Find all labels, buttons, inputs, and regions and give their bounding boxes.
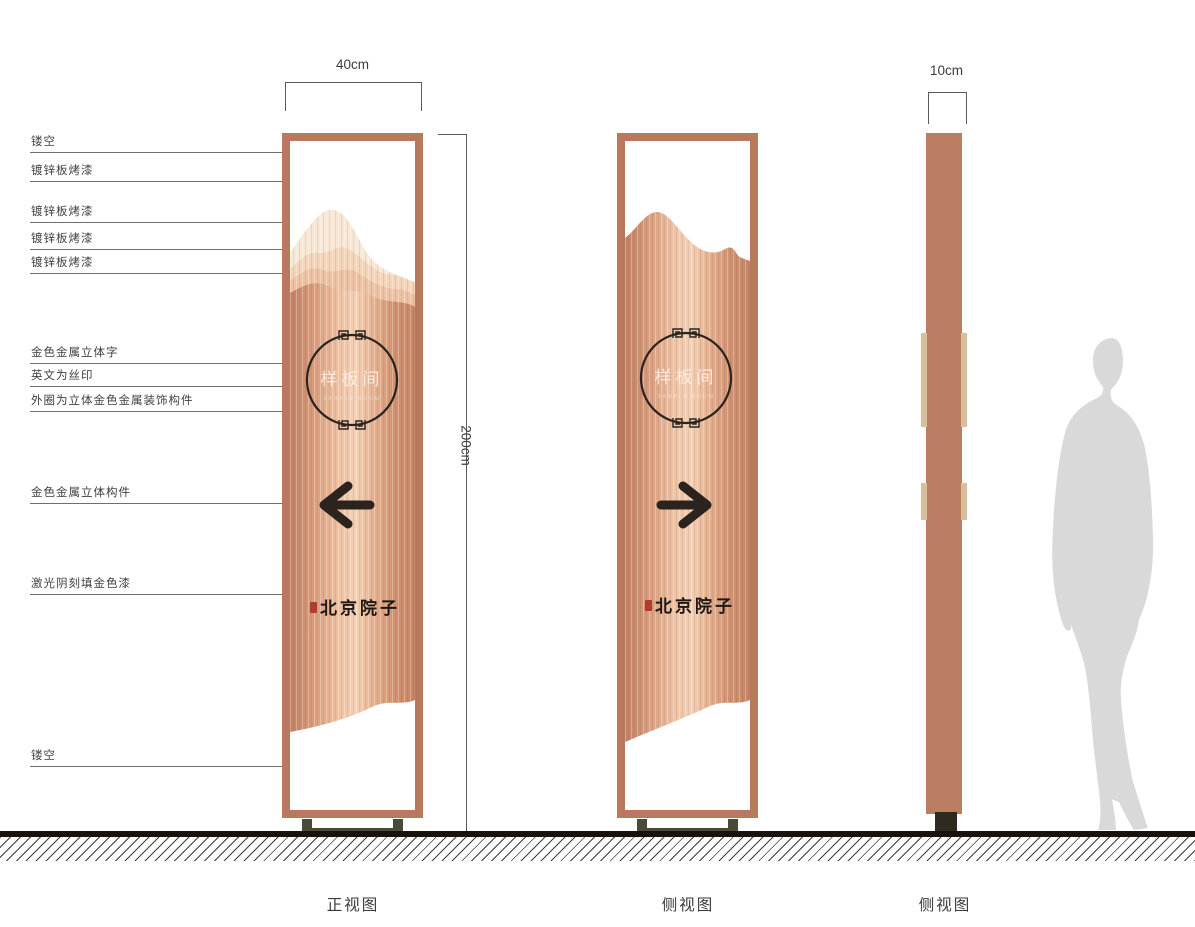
callout-galvanized-layer2: 镀锌板烤漆	[30, 229, 292, 250]
pillar-front-frame: 样板间 SAMPLE ROOM 北京院子	[282, 133, 423, 818]
annotation-label: 英文为丝印	[31, 367, 94, 383]
seal-stamp	[645, 600, 652, 611]
profile-tab-circle	[961, 333, 967, 427]
dimension-bracket-front	[285, 82, 422, 111]
callout-gold-arrow: 金色金属立体构件	[30, 483, 320, 504]
brand-calligraphy: 北京院子	[320, 598, 400, 618]
person-silhouette	[1040, 336, 1188, 833]
sign-plate-text: 样板间	[321, 370, 384, 389]
pillar-side-frame: 样板间 SAMPLE ROOM 北京院子	[617, 133, 758, 818]
annotation-label: 镂空	[31, 747, 56, 763]
callout-galvanized-frame: 镀锌板烤漆	[30, 161, 283, 182]
view-label-side: 侧视图	[662, 893, 715, 915]
callout-hollow-top: 镂空	[30, 132, 307, 153]
callout-galvanized-layer3: 镀锌板烤漆	[30, 253, 292, 274]
sign-plate-subtext: SAMPLE ROOM	[323, 396, 380, 402]
annotation-label: 镂空	[31, 133, 56, 149]
view-label-front: 正视图	[327, 893, 380, 915]
annotation-label: 激光阴刻填金色漆	[31, 575, 131, 591]
profile-tab-arrow	[961, 483, 967, 520]
callout-hollow-bottom: 镂空	[30, 746, 303, 767]
annotation-label: 金色金属立体字	[31, 344, 119, 360]
view-label-profile: 侧视图	[919, 893, 972, 915]
annotation-label: 外圈为立体金色金属装饰构件	[31, 392, 194, 408]
callout-ring-component: 外圈为立体金色金属装饰构件	[30, 391, 316, 412]
pillar-front-artwork: 样板间 SAMPLE ROOM 北京院子	[290, 141, 415, 810]
annotation-label: 镀锌板烤漆	[31, 162, 94, 178]
brand-mark: 北京院子	[310, 598, 400, 618]
seal-stamp	[310, 602, 317, 613]
dimension-height-line	[466, 134, 467, 832]
profile-tab-circle	[921, 333, 927, 427]
annotation-label: 镀锌板烤漆	[31, 230, 94, 246]
dimension-height-tick	[438, 134, 466, 135]
annotation-label: 镀锌板烤漆	[31, 203, 94, 219]
dimension-height: 200cm	[459, 416, 474, 476]
brand-calligraphy: 北京院子	[655, 596, 735, 616]
annotation-label: 金色金属立体构件	[31, 484, 131, 500]
brushed-texture	[625, 201, 750, 761]
pillar-profile-body	[926, 133, 962, 814]
ground-hatch	[0, 837, 1195, 861]
dimension-front-width: 40cm	[285, 57, 420, 72]
annotation-label: 镀锌板烤漆	[31, 254, 94, 270]
dimension-side-depth: 10cm	[928, 63, 965, 78]
pillar-side-artwork: 样板间 SAMPLE ROOM 北京院子	[625, 141, 750, 810]
profile-tab-arrow	[921, 483, 927, 520]
sign-plate-subtext: SAMPLE ROOM	[657, 394, 714, 400]
callout-galvanized-layer1: 镀锌板烤漆	[30, 202, 322, 223]
brand-mark: 北京院子	[645, 596, 735, 616]
brushed-texture	[290, 201, 415, 761]
dimension-bracket-side	[928, 92, 967, 124]
sign-plate-text: 样板间	[655, 368, 718, 387]
spec-sheet: 镂空 镀锌板烤漆 镀锌板烤漆 镀锌板烤漆 镀锌板烤漆 金色金属立体字 英文为丝印…	[0, 0, 1195, 927]
